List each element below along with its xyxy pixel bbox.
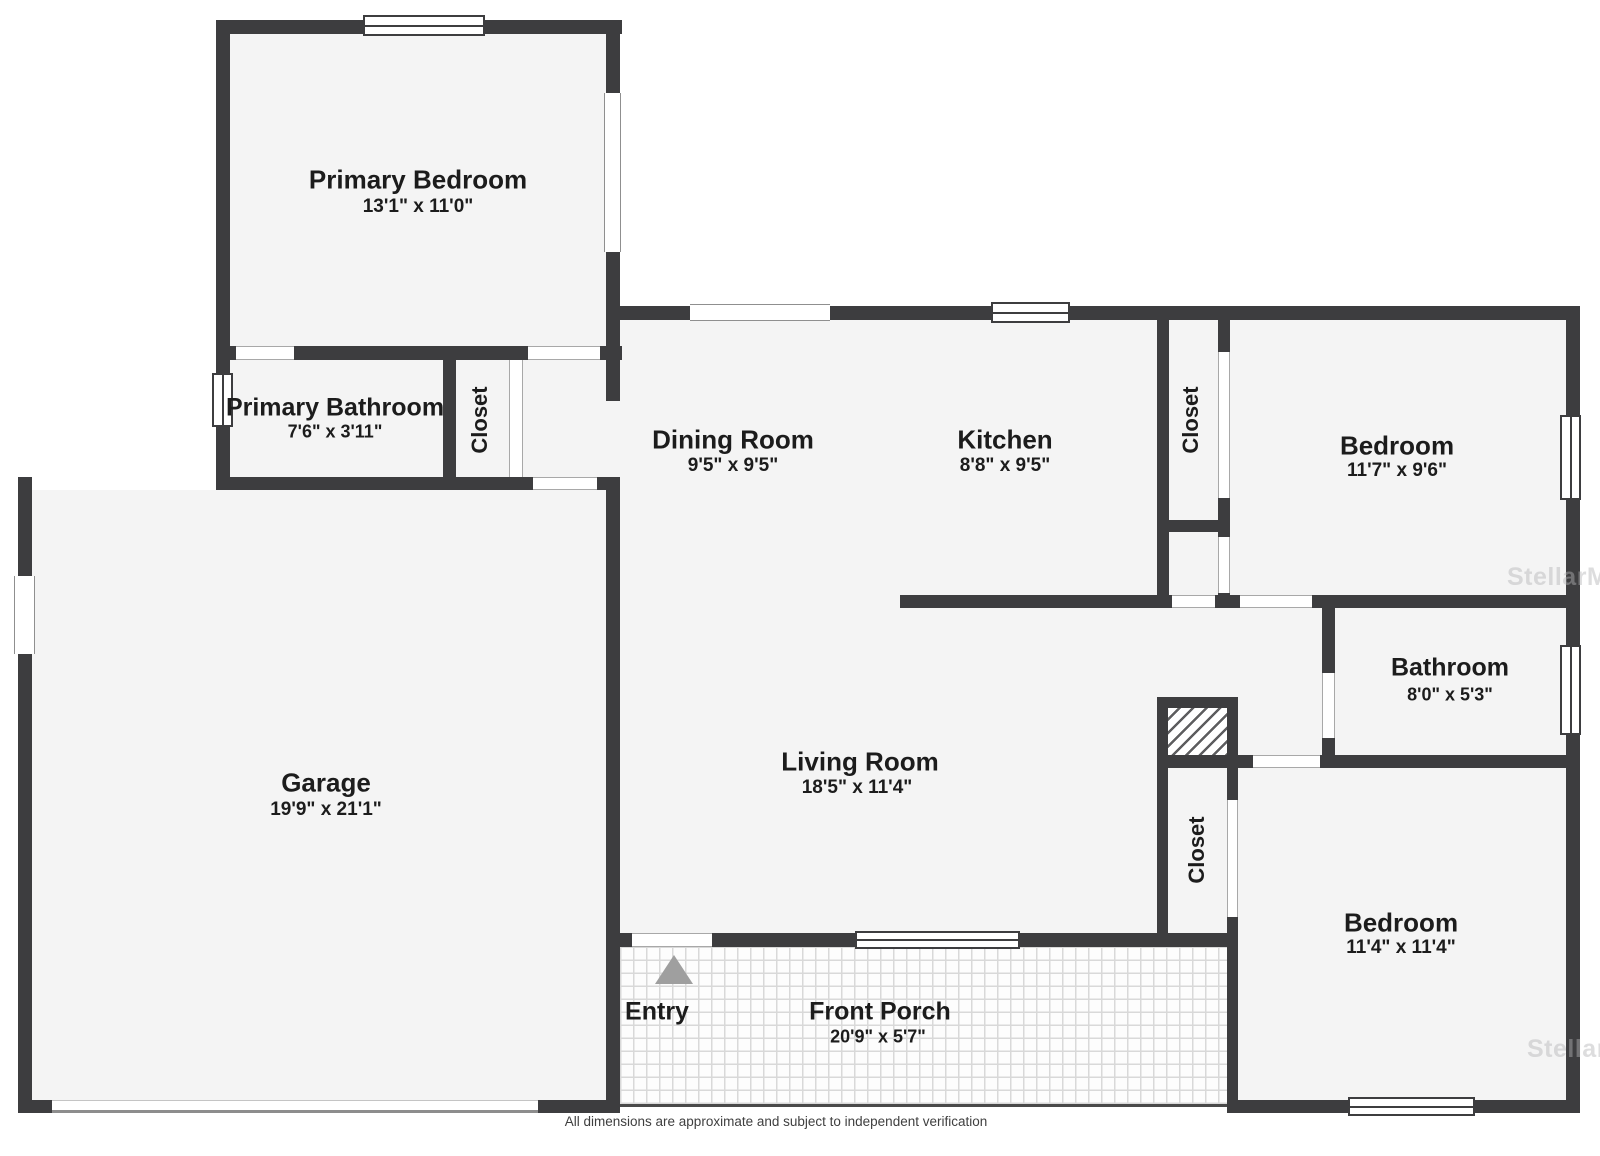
bathroom-door bbox=[1322, 673, 1335, 738]
garage-dims: 19'9" x 21'1" bbox=[270, 799, 382, 821]
wall bbox=[216, 477, 533, 490]
right-bedroom-window bbox=[1560, 415, 1581, 500]
wall bbox=[294, 346, 528, 360]
hall-dining-opening bbox=[606, 401, 620, 477]
floor-plan: Primary Bedroom 13'1" x 11'0" Primary Ba… bbox=[0, 0, 1600, 1156]
bottom-bedroom-label: Bedroom bbox=[1344, 908, 1458, 939]
bottom-bedroom-door bbox=[1253, 755, 1320, 768]
dining-room-dims: 9'5" x 9'5" bbox=[688, 455, 778, 477]
wall bbox=[1227, 1100, 1350, 1113]
hall-closet-door bbox=[1227, 800, 1238, 917]
wall bbox=[1068, 306, 1566, 320]
dining-room-label: Dining Room bbox=[652, 425, 814, 456]
bathroom-label: Bathroom bbox=[1391, 654, 1509, 683]
wall bbox=[1473, 1100, 1566, 1113]
entry-door bbox=[632, 933, 712, 947]
entry-label: Entry bbox=[625, 998, 689, 1027]
wall bbox=[1157, 306, 1169, 605]
primary-bedroom-side-window bbox=[604, 93, 621, 252]
living-room-label: Living Room bbox=[781, 747, 938, 778]
bottom-bedroom-dims: 11'4" x 11'4" bbox=[1346, 937, 1455, 959]
wall bbox=[712, 933, 855, 947]
primary-bathroom-dims: 7'6" x 3'11" bbox=[288, 422, 383, 443]
wall bbox=[1227, 947, 1238, 1113]
primary-bedroom-dims: 13'1" x 11'0" bbox=[363, 196, 474, 218]
living-hall-opening bbox=[1240, 595, 1312, 608]
wall bbox=[1157, 755, 1253, 768]
utility-hatch bbox=[1168, 708, 1227, 755]
wall bbox=[443, 360, 456, 477]
bathroom-dims: 8'0" x 5'3" bbox=[1407, 685, 1493, 706]
primary-bedroom-door bbox=[236, 346, 294, 360]
front-porch-dims: 20'9" x 5'7" bbox=[830, 1027, 926, 1048]
wall bbox=[1227, 917, 1238, 947]
bottom-bedroom-window bbox=[1348, 1097, 1475, 1116]
wall bbox=[1157, 697, 1168, 947]
wall bbox=[1322, 607, 1335, 673]
wall bbox=[830, 306, 993, 320]
kitchen-closet-door bbox=[1218, 352, 1230, 498]
dining-room-window bbox=[690, 304, 830, 321]
primary-bedroom-window bbox=[363, 15, 485, 36]
watermark: StellarMLS bbox=[1527, 1035, 1600, 1064]
wall bbox=[1218, 498, 1230, 537]
wall bbox=[1322, 738, 1335, 765]
wall bbox=[1312, 595, 1566, 608]
wall bbox=[1227, 697, 1238, 800]
living-room-window bbox=[855, 931, 1020, 949]
kitchen-closet-label: Closet bbox=[1178, 386, 1204, 453]
garage-window bbox=[14, 576, 35, 654]
primary-bedroom-label: Primary Bedroom bbox=[309, 165, 527, 196]
primary-bathroom-label: Primary Bathroom bbox=[226, 394, 444, 423]
wall bbox=[1218, 593, 1230, 608]
disclaimer-text: All dimensions are approximate and subje… bbox=[565, 1114, 988, 1129]
front-porch-label: Front Porch bbox=[809, 998, 951, 1027]
kitchen-dims: 8'8" x 9'5" bbox=[960, 455, 1050, 477]
corridor-opening bbox=[1172, 595, 1215, 608]
wall bbox=[18, 477, 32, 1113]
wall bbox=[1320, 755, 1566, 768]
watermark: StellarMLS bbox=[1507, 563, 1600, 592]
primary-closet-door bbox=[509, 360, 523, 477]
primary-closet-label: Closet bbox=[467, 386, 493, 453]
primary-bedroom-hall-opening bbox=[528, 346, 600, 360]
right-bedroom-label: Bedroom bbox=[1340, 431, 1454, 462]
hall-closet-label: Closet bbox=[1184, 816, 1210, 883]
right-bedroom-dims: 11'7" x 9'6" bbox=[1347, 460, 1447, 482]
wall bbox=[1020, 933, 1238, 947]
garage-label: Garage bbox=[281, 768, 371, 799]
entry-arrow-icon bbox=[655, 955, 693, 984]
living-room-dims: 18'5" x 11'4" bbox=[802, 777, 913, 799]
kitchen-half-wall bbox=[900, 595, 1172, 608]
bathroom-window bbox=[1560, 645, 1581, 735]
wall bbox=[1218, 306, 1230, 352]
wall bbox=[1157, 697, 1238, 708]
garage-entry-door bbox=[533, 477, 597, 490]
garage-overhead-door bbox=[52, 1100, 538, 1113]
kitchen-label: Kitchen bbox=[957, 425, 1052, 456]
kitchen-window bbox=[991, 302, 1070, 323]
right-bedroom-door bbox=[1218, 537, 1230, 593]
